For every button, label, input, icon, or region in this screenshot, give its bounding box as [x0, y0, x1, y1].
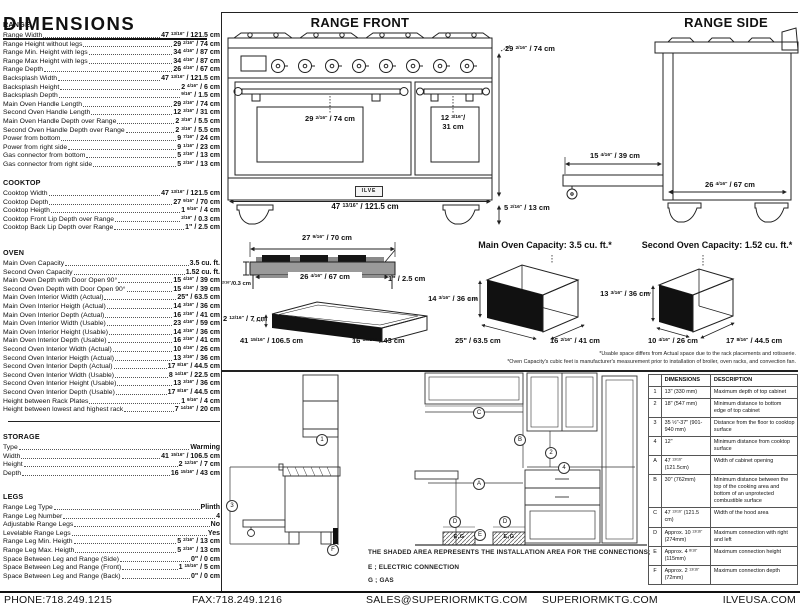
dotted-leader: [109, 329, 172, 335]
dotted-leader: [122, 573, 190, 579]
dim-main-oven-depth: 16 2/16" / 41 cm: [550, 336, 600, 345]
spec-label: Adjustable Range Legs: [3, 521, 73, 528]
dim-front-lip: 2/16"/0.3 cm: [222, 281, 251, 287]
spec-row: Adjustable Range Legs No: [3, 520, 220, 529]
dotted-leader: [107, 320, 173, 326]
dim-table-dimension: 13" (330 mm): [662, 387, 711, 399]
spec-label: Space Between Leg and Range (Back): [3, 573, 121, 580]
dim-table-row: E Approx. 4 8/16" (115mm) Maximum connec…: [649, 546, 798, 565]
dotted-leader: [72, 530, 207, 536]
range-front-drawing: [228, 30, 553, 230]
dim-table-header: DIMENSIONS DESCRIPTION: [649, 375, 798, 387]
spec-label: Depth: [3, 470, 21, 477]
spec-row: Range Leg Min. Heigth 5 2/16" / 13 cm: [3, 537, 220, 546]
spec-label: Gas connector from bottom: [3, 152, 85, 159]
dotted-leader: [44, 66, 172, 72]
spec-value: 13 3/16" / 36 cm: [173, 380, 220, 387]
dotted-leader: [83, 41, 172, 47]
spec-row: Main Oven Interior Height (Usable) 14 3/…: [3, 327, 220, 336]
panel-top-border: [221, 12, 798, 13]
dotted-leader: [60, 84, 180, 90]
spec-value: 9 1/16" / 23 cm: [177, 144, 220, 151]
spec-value: 1 9/16" / 4 cm: [181, 398, 220, 405]
spec-value: Yes: [208, 530, 220, 537]
dotted-leader: [68, 144, 176, 150]
spec-row: Height 2 12/16" / 7 cm: [3, 460, 220, 469]
spec-value: 15 4/16" / 39 cm: [173, 286, 220, 293]
spec-value: 5 2/16" / 13 cm: [177, 538, 220, 545]
spec-row: Height between Rack Plates 1 9/16" / 4 c…: [3, 396, 220, 405]
spec-label: Range Max Height with legs: [3, 58, 88, 65]
installation-drawing: [222, 371, 647, 549]
spec-row: Second Oven Depth with Door Open 90° 15 …: [3, 284, 220, 293]
dim-front-width: 47 13/16" / 121.5 cm: [315, 202, 415, 211]
spec-value: 25" / 63.5 cm: [177, 294, 220, 301]
spec-value: 8 14/16" / 22.5 cm: [169, 372, 220, 379]
footer-email: SALES@SUPERIORMKTG.COM: [366, 594, 528, 606]
install-note: THE SHADED AREA REPRESENTS THE INSTALLAT…: [368, 549, 650, 556]
spec-value: 41 15/16" / 106.5 cm: [161, 453, 220, 460]
dim-table-key: 3: [649, 418, 662, 437]
dotted-leader: [74, 269, 185, 275]
spec-value: 1 9/16" / 4 cm: [181, 207, 220, 214]
dotted-leader: [22, 470, 170, 476]
spec-label: Space Between Leg and Range (Side): [3, 556, 119, 563]
spec-value: 5 2/16" / 13 cm: [177, 161, 220, 168]
spec-row: Range Width 47 13/16" / 121.5 cm: [3, 31, 220, 40]
spec-label: Height: [3, 461, 23, 468]
dim-second-handle: 12 3/16"/ 31 cm: [420, 113, 486, 131]
spec-value: 27 9/16" / 70 cm: [173, 199, 220, 206]
spec-row: Space Between Leg and Range (Back) 0" / …: [3, 571, 220, 580]
oven-rows: Main Oven Capacity 3.5 cu. ft. Second Ov…: [3, 259, 220, 414]
dim-main-handle: 29 2/16" / 74 cm: [290, 114, 370, 123]
spec-row: Range Depth 26 4/16" / 67 cm: [3, 65, 220, 74]
marker-1: 1: [316, 434, 328, 446]
dotted-leader: [58, 75, 160, 81]
spec-label: Height between lowest and highest rack: [3, 406, 123, 413]
spec-label: Backsplash Width: [3, 75, 57, 82]
spec-value: 1" / 2.5 cm: [185, 224, 220, 231]
dotted-leader: [59, 92, 180, 98]
spec-value: No: [211, 521, 220, 528]
spec-label: Range Min. Height with legs: [3, 49, 88, 56]
spec-label: Main Oven Interior Heigth (Actual): [3, 303, 106, 310]
spec-label: Range Leg Number: [3, 513, 62, 520]
spec-label: Cooktop Back Lip Depth over Range: [3, 224, 113, 231]
dim-table-key: 4: [649, 437, 662, 456]
dotted-leader: [107, 303, 173, 309]
dim-leg-height: 5 2/16" / 13 cm: [504, 203, 550, 212]
spec-row: Backsplash Height 2 4/16" / 6 cm: [3, 82, 220, 91]
spec-row: Space Between Leg and Range (Side) 0" / …: [3, 554, 220, 563]
spec-label: Levelable Range Legs: [3, 530, 71, 537]
spec-sheet-page: DIMENSIONS RANGE Range Width 47 13/16" /…: [0, 0, 800, 610]
spec-row: Main Oven Interior Width (Usable) 23 4/1…: [3, 319, 220, 328]
spec-label: Type: [3, 444, 18, 451]
spec-row: Main Oven Capacity 3.5 cu. ft.: [3, 259, 220, 268]
dim-table-key: D: [649, 527, 662, 546]
marker-f: F: [327, 544, 339, 556]
footnote-capacity: *Oven Capacity's cubic feet is manufactu…: [406, 359, 796, 365]
spec-row: Backsplash Depth 9/16" / 1.5 cm: [3, 91, 220, 100]
spec-value: 17 8/16" / 44.5 cm: [168, 363, 220, 370]
spec-label: Main Oven Interior Depth (Usable): [3, 337, 107, 344]
spec-value: 2 4/16" / 6 cm: [181, 84, 220, 91]
dim-table-header-blank: [649, 375, 662, 387]
marker-b: B: [514, 434, 526, 446]
dotted-leader: [115, 355, 172, 361]
spec-label: Main Oven Handle Length: [3, 101, 82, 108]
dim-table-dimension: Approx. 10 13/16" (274mm): [662, 527, 711, 546]
spec-row: Power from bottom 9 7/16" / 24 cm: [3, 134, 220, 143]
connection-area-label: E,G: [493, 534, 525, 540]
dotted-leader: [108, 337, 173, 343]
spec-value: 9 7/16" / 24 cm: [177, 135, 220, 142]
spec-row: Second Oven Handle Depth over Range 2 3/…: [3, 125, 220, 134]
dim-side-depth: 26 4/16" / 67 cm: [690, 180, 770, 189]
spec-row: Main Oven Interior Depth (Usable) 16 2/1…: [3, 336, 220, 345]
dotted-leader: [118, 277, 172, 283]
spec-row: Levelable Range Legs Yes: [3, 528, 220, 537]
spec-value: 13 3/16" / 36 cm: [173, 355, 220, 362]
dim-table-dimension: Approx. 4 8/16" (115mm): [662, 546, 711, 565]
dim-table-header-dimensions: DIMENSIONS: [662, 375, 711, 387]
dotted-leader: [127, 286, 173, 292]
spec-row: Range Min. Height with legs 34 4/16" / 8…: [3, 48, 220, 57]
spec-row: Second Oven Interior Width (Usable) 8 14…: [3, 370, 220, 379]
spec-label: Second Oven Handle Depth over Range: [3, 127, 125, 134]
spec-value: 0" / 0 cm: [191, 573, 220, 580]
spec-value: Plinth: [201, 504, 220, 511]
dim-table-row: 3 35 ½"-37" (901-940 mm) Distance from t…: [649, 418, 798, 437]
marker-c: C: [473, 407, 485, 419]
spec-row: Second Oven Interior Depth (Usable) 17 8…: [3, 387, 220, 396]
dotted-leader: [91, 109, 172, 115]
spec-label: Width: [3, 453, 20, 460]
dotted-leader: [114, 224, 184, 230]
dim-table-dimension: Approx. 2 13/16" (72mm): [662, 565, 711, 584]
spec-value: 47 13/16" / 121.5 cm: [161, 32, 220, 39]
spec-value: 17 8/16" / 44.5 cm: [168, 389, 220, 396]
dotted-leader: [74, 538, 177, 544]
dim-table-description: Width of the hood area: [711, 508, 798, 527]
dim-storage-depth: 16 15/16" / 43 cm: [352, 336, 405, 345]
dotted-leader: [75, 547, 176, 553]
dim-table-dimension: 47 13/16" (121.5 cm): [662, 508, 711, 527]
spec-value: 12 3/16" / 31 cm: [173, 109, 220, 116]
dotted-leader: [65, 260, 188, 266]
dotted-leader: [124, 406, 174, 412]
spec-value: 14 3/16" / 36 cm: [173, 329, 220, 336]
dim-table-row: A 47 13/16" (121.5cm) Width of cabinet o…: [649, 456, 798, 475]
spec-value: 5 2/16" / 13 cm: [177, 547, 220, 554]
spec-row: Height between lowest and highest rack 7…: [3, 405, 220, 414]
spec-label: Second Oven Interior Width (Usable): [3, 372, 114, 379]
spec-label: Range Width: [3, 32, 42, 39]
marker-4: 4: [558, 462, 570, 474]
spec-label: Second Oven Interior Depth (Actual): [3, 363, 113, 370]
dotted-leader: [63, 513, 215, 519]
dotted-leader: [114, 363, 167, 369]
dotted-leader: [116, 389, 167, 395]
dim-table-description: Maximum connection depth: [711, 565, 798, 584]
spec-value: 2 12/16" / 7 cm: [179, 461, 220, 468]
spec-value: Warming: [190, 444, 220, 451]
dim-table-key: A: [649, 456, 662, 475]
spec-row: Main Oven Interior Heigth (Actual) 14 3/…: [3, 301, 220, 310]
dim-second-oven-height: 13 3/16" / 36 cm: [596, 289, 650, 298]
section-oven: OVEN Main Oven Capacity 3.5 cu. ft. Seco…: [3, 248, 220, 413]
spec-row: Main Oven Interior Width (Actual) 25" / …: [3, 293, 220, 302]
spec-row: Main Oven Depth with Door Open 90° 15 4/…: [3, 276, 220, 285]
spec-label: Range Leg Max. Heigth: [3, 547, 74, 554]
spec-row: Cooktop Width 47 13/16" / 121.5 cm: [3, 189, 220, 198]
dotted-leader: [49, 190, 161, 196]
dotted-leader: [54, 504, 200, 510]
dotted-leader: [86, 152, 176, 158]
dim-front-height: 29 2/16" / 74 cm: [505, 44, 555, 53]
range-front-title: RANGE FRONT: [228, 15, 492, 30]
dim-table-dimension: 47 13/16" (121.5cm): [662, 456, 711, 475]
spec-value: 26 4/16" / 67 cm: [173, 66, 220, 73]
dimensions-table: DIMENSIONS DESCRIPTION 1 13" (330 mm) Ma…: [648, 374, 798, 585]
spec-label: Main Oven Depth with Door Open 90°: [3, 277, 117, 284]
dotted-leader: [126, 127, 175, 133]
marker-a: A: [473, 478, 485, 490]
dim-table-dimension: 30" (762mm): [662, 475, 711, 508]
dotted-leader: [117, 118, 174, 124]
spec-row: Main Oven Handle Depth over Range 2 3/16…: [3, 116, 220, 125]
spec-label: Main Oven Interior Height (Usable): [3, 329, 108, 336]
dim-table-dimension: 12": [662, 437, 711, 456]
dim-table-row: B 30" (762mm) Minimum distance between t…: [649, 475, 798, 508]
marker-d: D: [449, 516, 461, 528]
dim-cooktop-inner: 26 4/16" / 67 cm: [288, 272, 362, 281]
dim-table-row: F Approx. 2 13/16" (72mm) Maximum connec…: [649, 565, 798, 584]
dim-table-row: 2 18" (547 mm) Minimum distance to botto…: [649, 399, 798, 418]
spec-row: Range Leg Max. Heigth 5 2/16" / 13 cm: [3, 545, 220, 554]
dim-storage-width: 41 15/16" / 106.5 cm: [240, 336, 303, 345]
dim-table-description: Maximum depth of top cabinet: [711, 387, 798, 399]
footer-border: [0, 591, 800, 593]
spec-row: Second Oven Interior Depth (Actual) 17 8…: [3, 362, 220, 371]
spec-label: Range Depth: [3, 66, 43, 73]
spec-label: Cooktop Front Lip Depth over Range: [3, 216, 114, 223]
section-title-cooktop: COOKTOP: [3, 178, 220, 187]
spec-label: Height between Rack Plates: [3, 398, 88, 405]
spec-row: Power from right side 9 1/16" / 23 cm: [3, 142, 220, 151]
marker-3: 3: [226, 500, 238, 512]
dim-second-oven-width: 10 4/16" / 26 cm: [648, 336, 698, 345]
dim-table-row: D Approx. 10 13/16" (274mm) Maximum conn…: [649, 527, 798, 546]
dotted-leader: [115, 216, 180, 222]
spec-row: Second Oven Interior Width (Actual) 10 4…: [3, 344, 220, 353]
spec-value: 1 15/16" / 5 cm: [179, 564, 220, 571]
cooktop-rows: Cooktop Width 47 13/16" / 121.5 cm Cookt…: [3, 189, 220, 232]
footnote-usable-space: *Usable space differs from Actual space …: [406, 351, 796, 357]
spec-row: Cooktop Front Lip Depth over Range 2/16"…: [3, 214, 220, 223]
dim-table-description: Minimum distance from cooktop surface: [711, 437, 798, 456]
spec-row: Main Oven Interior Depth (Actual) 16 2/1…: [3, 310, 220, 319]
section-range: RANGE Range Width 47 13/16" / 121.5 cm R…: [3, 20, 220, 168]
range-rows: Range Width 47 13/16" / 121.5 cm Range H…: [3, 31, 220, 169]
spec-value: 16 2/16" / 41 cm: [173, 337, 220, 344]
dim-second-oven-depth: 17 8/16" / 44.5 cm: [726, 336, 782, 345]
dim-table-key: C: [649, 508, 662, 527]
connection-area-label: E,G: [443, 534, 475, 540]
spec-value: 23 4/16" / 59 cm: [173, 320, 220, 327]
dim-table-key: 1: [649, 387, 662, 399]
spec-row: Range Max Height with legs 34 4/16" / 87…: [3, 56, 220, 65]
marker-d: D: [499, 516, 511, 528]
spec-value: 34 4/16" / 87 cm: [173, 58, 220, 65]
section-cooktop: COOKTOP Cooktop Width 47 13/16" / 121.5 …: [3, 178, 220, 231]
dim-table-description: Minimum distance between the top of the …: [711, 475, 798, 508]
spec-row: Space Between Leg and Range (Front) 1 15…: [3, 563, 220, 572]
spec-label: Second Oven Interior Heigth (Actual): [3, 355, 114, 362]
dotted-leader: [24, 461, 178, 467]
dim-cooktop-width: 27 9/16" / 70 cm: [282, 233, 372, 242]
section-title-legs: LEGS: [3, 492, 220, 501]
dim-table-description: Maximum connection with right and left: [711, 527, 798, 546]
spec-row: Second Oven Capacity 1.52 cu. ft.: [3, 267, 220, 276]
spec-value: 47 13/16" / 121.5 cm: [161, 75, 220, 82]
dotted-leader: [89, 58, 173, 64]
spec-value: 5 2/16" / 13 cm: [177, 152, 220, 159]
spec-row: Depth 16 15/16" / 43 cm: [3, 468, 220, 477]
dim-table-key: F: [649, 565, 662, 584]
spec-label: Main Oven Interior Width (Usable): [3, 320, 106, 327]
section-title-range: RANGE: [3, 20, 220, 29]
dotted-leader: [89, 49, 173, 55]
dotted-leader: [19, 444, 190, 450]
spec-row: Cooktop Back Lip Depth over Range 1" / 2…: [3, 223, 220, 232]
spec-label: Main Oven Interior Depth (Actual): [3, 312, 104, 319]
spec-label: Space Between Leg and Range (Front): [3, 564, 121, 571]
spec-label: Main Oven Capacity: [3, 260, 64, 267]
electric-connection-note: E ; ELECTRIC CONNECTION: [368, 564, 459, 571]
spec-value: 7 14/16" / 20 cm: [175, 406, 220, 413]
spec-value: 16 2/16" / 41 cm: [173, 312, 220, 319]
spec-row: Range Height without legs 29 2/16" / 74 …: [3, 39, 220, 48]
section-storage: STORAGE Type Warming Width 41 15/16" / 1…: [3, 432, 220, 477]
footer-fax: FAX:718.249.1216: [192, 594, 282, 606]
dim-table-key: E: [649, 546, 662, 565]
spec-value: 14 3/16" / 36 cm: [173, 303, 220, 310]
dotted-leader: [93, 161, 176, 167]
dotted-leader: [89, 398, 180, 404]
spec-row: Range Leg Type Plinth: [3, 503, 220, 512]
legs-rows: Range Leg Type Plinth Range Leg Number 4…: [3, 503, 220, 580]
spec-label: Range Height without legs: [3, 41, 82, 48]
gas-connection-note: G ; GAS: [368, 577, 394, 584]
cooktop-profile-drawing: [222, 236, 432, 298]
spec-label: Backsplash Depth: [3, 92, 58, 99]
spec-value: 4: [216, 513, 220, 520]
dotted-leader: [120, 556, 190, 562]
dotted-leader: [74, 521, 209, 527]
spec-row: Second Oven Handle Length 12 3/16" / 31 …: [3, 108, 220, 117]
dotted-leader: [105, 312, 172, 318]
spec-label: Main Oven Handle Depth over Range: [3, 118, 116, 125]
range-side-drawing: [556, 28, 800, 230]
spec-value: 1.52 cu. ft.: [186, 269, 220, 276]
dim-table-key: B: [649, 475, 662, 508]
spec-value: 2 3/16" / 5.5 cm: [175, 118, 220, 125]
footer-brand: ILVEUSA.COM: [723, 594, 796, 606]
second-oven-capacity-title: Second Oven Capacity: 1.52 cu. ft.*: [627, 240, 800, 250]
footer-website: SUPERIORMKTG.COM: [542, 594, 658, 606]
spec-label: Second Oven Interior Width (Actual): [3, 346, 112, 353]
spec-value: 16 15/16" / 43 cm: [171, 470, 220, 477]
spec-value: 2 3/16" / 5.5 cm: [175, 127, 220, 134]
dim-table-description: Maximum connection height: [711, 546, 798, 565]
spec-value: 0" / 0 cm: [191, 556, 220, 563]
footer-phone: PHONE:718.249.1215: [4, 594, 112, 606]
dim-door-open: 15 4/16" / 39 cm: [575, 151, 655, 160]
dim-table-row: 4 12" Minimum distance from cooktop surf…: [649, 437, 798, 456]
spec-row: Backsplash Width 47 13/16" / 121.5 cm: [3, 73, 220, 82]
spec-label: Second Oven Handle Length: [3, 109, 90, 116]
spec-row: Gas connector from right side 5 2/16" / …: [3, 159, 220, 168]
spec-label: Power from bottom: [3, 135, 60, 142]
spec-label: Main Oven Interior Width (Actual): [3, 294, 103, 301]
spec-value: 9/16" / 1.5 cm: [181, 92, 220, 99]
marker-e: E: [474, 529, 486, 541]
dim-table-dimension: 35 ½"-37" (901-940 mm): [662, 418, 711, 437]
dotted-leader: [61, 135, 176, 141]
spec-label: Gas connector from right side: [3, 161, 92, 168]
section-title-storage: STORAGE: [3, 432, 220, 441]
storage-rows: Type Warming Width 41 15/16" / 106.5 cm …: [3, 443, 220, 477]
dotted-leader: [113, 346, 173, 352]
dotted-leader: [83, 101, 172, 107]
dim-table-description: Minimum distance to bottom edge of top c…: [711, 399, 798, 418]
dim-table-description: Distance from the floor to cooktop surfa…: [711, 418, 798, 437]
dim-table-header-description: DESCRIPTION: [711, 375, 798, 387]
spec-row: Type Warming: [3, 443, 220, 452]
section-title-oven: OVEN: [3, 248, 220, 257]
spec-row: Cooktop Depth 27 9/16" / 70 cm: [3, 197, 220, 206]
dotted-leader: [49, 199, 172, 205]
dim-table-row: C 47 13/16" (121.5 cm) Width of the hood…: [649, 508, 798, 527]
spec-row: Gas connector from bottom 5 2/16" / 13 c…: [3, 151, 220, 160]
main-oven-capacity-title: Main Oven Capacity: 3.5 cu. ft.*: [455, 240, 635, 250]
section-legs: LEGS Range Leg Type Plinth Range Leg Num…: [3, 492, 220, 580]
spec-value: 3.5 cu. ft.: [190, 260, 220, 267]
spec-row: Main Oven Handle Length 29 2/16" / 74 cm: [3, 99, 220, 108]
spec-value: 29 2/16" / 74 cm: [173, 101, 220, 108]
marker-2: 2: [545, 447, 557, 459]
ilve-logo: ILVE: [355, 186, 383, 197]
dotted-leader: [21, 453, 160, 459]
spec-label: Second Oven Interior Depth (Usable): [3, 389, 115, 396]
dotted-leader: [104, 294, 176, 300]
dotted-leader: [51, 207, 180, 213]
dim-main-oven-width: 25" / 63.5 cm: [455, 336, 501, 345]
dotted-leader: [115, 372, 168, 378]
spec-label: Cooktop Depth: [3, 199, 48, 206]
spec-row: Width 41 15/16" / 106.5 cm: [3, 451, 220, 460]
spec-label: Range Leg Min. Heigth: [3, 538, 73, 545]
spec-label: Backsplash Height: [3, 84, 59, 91]
spec-label: Second Oven Depth with Door Open 90°: [3, 286, 126, 293]
spec-label: Power from right side: [3, 144, 67, 151]
dim-table-row: 1 13" (330 mm) Maximum depth of top cabi…: [649, 387, 798, 399]
dotted-leader: [43, 32, 160, 38]
spec-row: Range Leg Number 4: [3, 511, 220, 520]
